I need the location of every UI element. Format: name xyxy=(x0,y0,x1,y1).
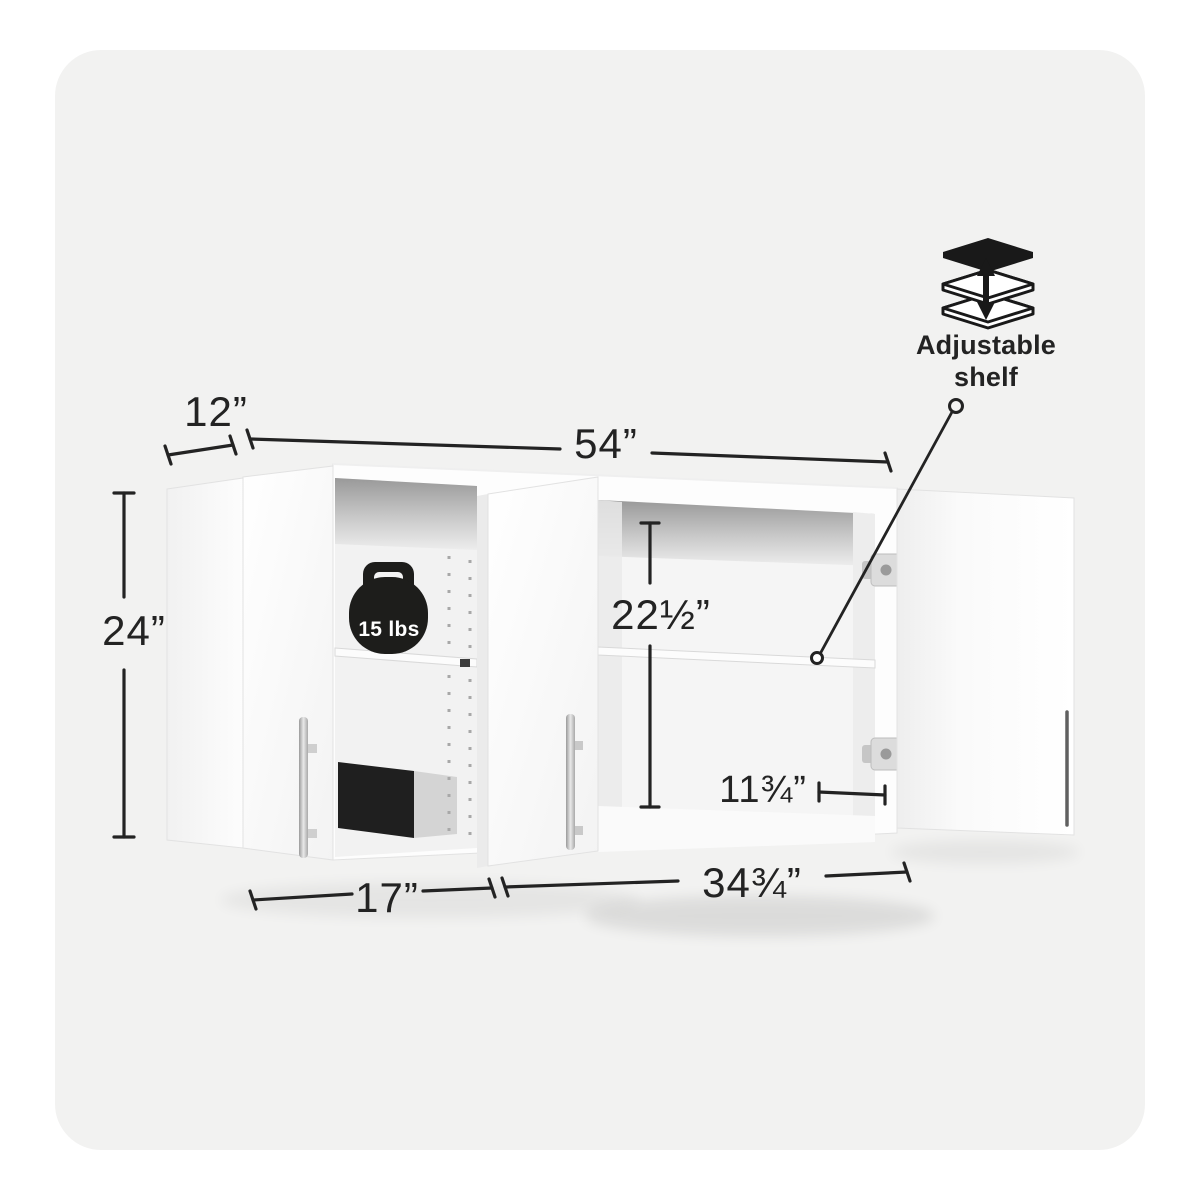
left-compartment xyxy=(335,478,477,857)
adjustable-shelf-icon xyxy=(943,238,1033,328)
cabinet-middle-door xyxy=(477,477,598,868)
door-handle xyxy=(566,714,575,850)
dim-depth-label: 12” xyxy=(184,388,248,435)
dimension-diagram: 15 lbs xyxy=(0,0,1200,1200)
leader-end-point xyxy=(812,653,823,664)
cabinet-right-door xyxy=(897,489,1074,835)
dim-interior-height-label: 22½” xyxy=(611,591,711,638)
product-image: 15 lbs xyxy=(0,0,1200,1200)
dim-overall-height-label: 24” xyxy=(102,607,166,654)
shelf-bracket xyxy=(460,659,470,667)
callout-label-line1: Adjustable xyxy=(916,330,1056,360)
cabinet-illustration: 15 lbs xyxy=(167,464,1074,868)
dim-overall-width-label: 54” xyxy=(574,420,638,467)
dim-right-door-width-label: 11¾” xyxy=(719,769,807,811)
open-compartment-shadow xyxy=(338,762,414,838)
weight-capacity-label: 15 lbs xyxy=(358,618,419,641)
dim-left-section-label: 17” xyxy=(355,874,419,921)
cabinet-left-door xyxy=(243,466,333,860)
dim-right-section-label: 34¾” xyxy=(702,859,802,906)
callout-label-line2: shelf xyxy=(954,362,1019,392)
cabinet-left-side-panel xyxy=(167,478,243,848)
